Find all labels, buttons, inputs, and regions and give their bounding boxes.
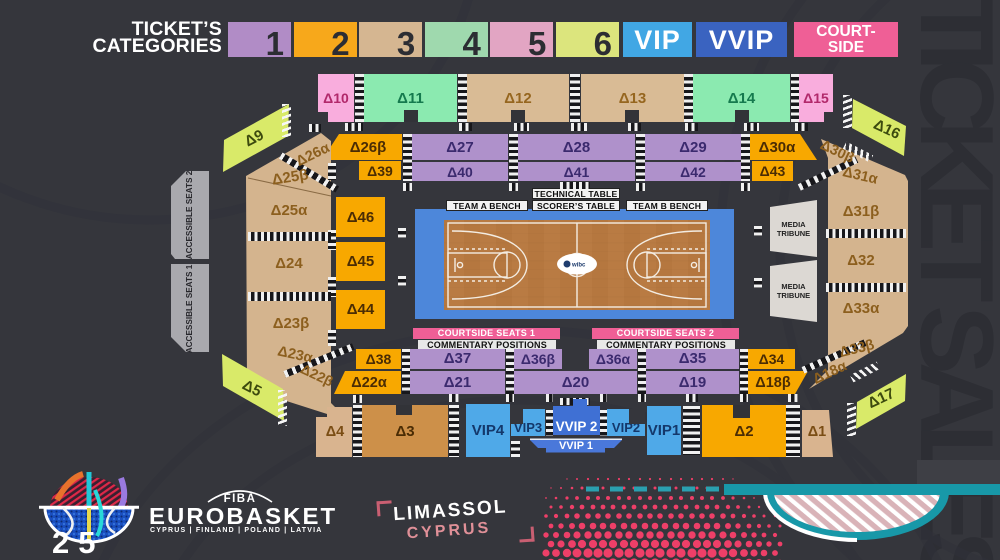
svg-text:wibc: wibc	[571, 263, 586, 269]
svg-text:25: 25	[52, 525, 104, 560]
